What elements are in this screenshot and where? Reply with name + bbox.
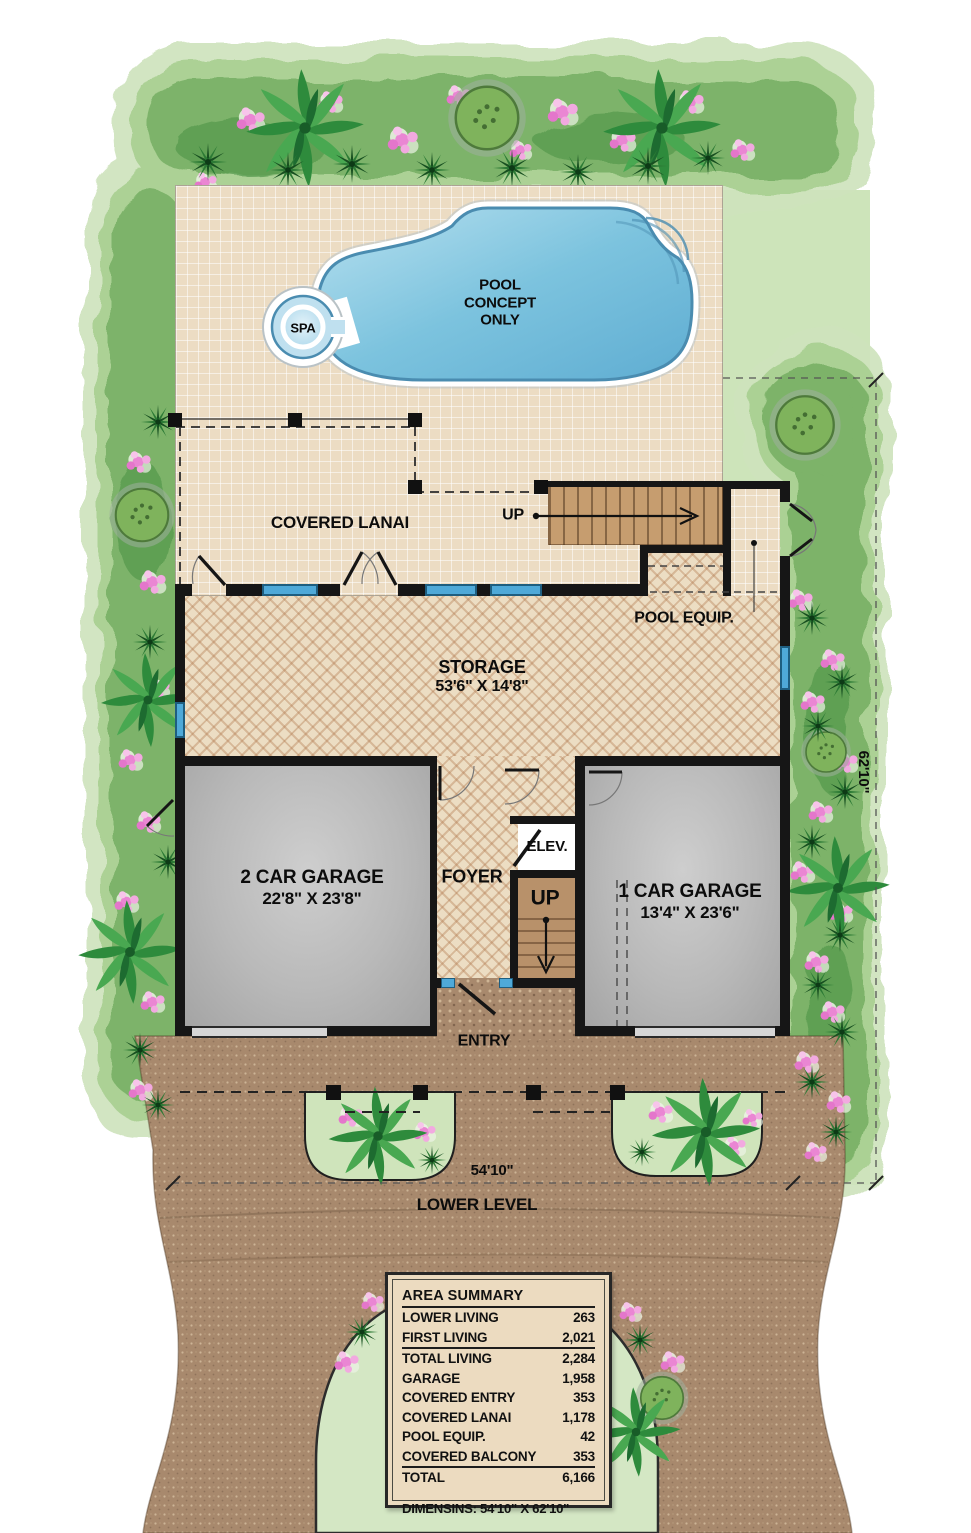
entry-posts: [326, 1085, 625, 1100]
garage-2car-dimensions: 22'8" X 23'8": [240, 889, 383, 909]
row-value: 263: [573, 1308, 595, 1328]
row-value: 2,021: [562, 1328, 595, 1348]
wall-segment: [510, 816, 575, 824]
entry-label: ENTRY: [458, 1033, 511, 1052]
wall-segment: [575, 756, 585, 1036]
elevator-label: ELEV.: [527, 838, 568, 856]
covered-lanai-label: COVERED LANAI: [271, 513, 409, 533]
row-label: TOTAL: [402, 1468, 445, 1488]
wall-segment: [780, 481, 790, 502]
row-value: 1,178: [562, 1408, 595, 1428]
table-row: FIRST LIVING2,021: [402, 1328, 595, 1348]
row-label: COVERED LANAI: [402, 1408, 511, 1428]
row-label: GARAGE: [402, 1369, 460, 1389]
area-summary-table: AREA SUMMARY LOWER LIVING263 FIRST LIVIN…: [385, 1272, 612, 1508]
row-label: FIRST LIVING: [402, 1328, 487, 1348]
floor-plan-canvas: COVERED LANAI POOL CONCEPT ONLY SPA UP P…: [0, 0, 971, 1533]
pool-equip-room: [723, 484, 780, 596]
garage-1car-name: 1 CAR GARAGE: [618, 881, 761, 903]
wall-segment: [510, 878, 518, 988]
wall-segment: [398, 584, 425, 596]
storage-label: STORAGE 53'6" X 14'8": [435, 657, 528, 697]
garage-2car-name: 2 CAR GARAGE: [240, 867, 383, 889]
row-label: COVERED ENTRY: [402, 1388, 515, 1408]
height-dimension-label: 62'10": [854, 751, 872, 794]
row-label: LOWER LIVING: [402, 1308, 499, 1328]
pool-label-line1: POOL: [464, 276, 536, 294]
area-summary-title: AREA SUMMARY: [402, 1286, 595, 1308]
table-row: COVERED ENTRY353: [402, 1388, 595, 1408]
table-row: GARAGE1,958: [402, 1369, 595, 1389]
row-value: 2,284: [562, 1349, 595, 1369]
wall-segment: [318, 584, 340, 596]
row-label: TOTAL LIVING: [402, 1349, 492, 1369]
window: [425, 584, 477, 596]
dimensions-note: DIMENSINS: 54'10" X 62'10": [402, 1501, 595, 1516]
row-value: 42: [580, 1427, 595, 1447]
table-row: COVERED LANAI1,178: [402, 1408, 595, 1428]
window: [175, 702, 185, 738]
wall-segment: [327, 1026, 437, 1036]
wall-segment: [780, 556, 790, 1036]
stairs-up-lanai: [548, 486, 723, 545]
wall-segment: [542, 584, 648, 596]
width-dimension-label: 54'10": [471, 1162, 514, 1180]
row-value: 353: [573, 1388, 595, 1408]
wall-segment: [226, 584, 262, 596]
wall-segment: [175, 584, 185, 1036]
table-row: TOTAL6,166: [402, 1466, 595, 1488]
planter-left: [305, 1092, 455, 1180]
area-summary-inner: AREA SUMMARY LOWER LIVING263 FIRST LIVIN…: [392, 1279, 605, 1501]
window: [780, 646, 790, 690]
row-label: POOL EQUIP.: [402, 1427, 486, 1447]
wall-segment: [477, 584, 490, 596]
garage-1car-dimensions: 13'4" X 23'6": [618, 903, 761, 923]
up-label-lanai: UP: [502, 507, 524, 526]
row-value: 353: [573, 1447, 595, 1467]
wall-segment: [648, 545, 723, 553]
stair-vestibule: [648, 551, 723, 596]
wall-segment: [175, 1026, 192, 1036]
wall-segment: [430, 756, 437, 1036]
wall-segment: [548, 481, 723, 487]
foyer-label: FOYER: [441, 866, 502, 887]
window: [262, 584, 318, 596]
garage-door-1car: [635, 1026, 775, 1038]
pool-label: POOL CONCEPT ONLY: [464, 276, 536, 329]
lower-level-label: LOWER LEVEL: [417, 1195, 538, 1215]
row-label: COVERED BALCONY: [402, 1447, 536, 1467]
window: [499, 978, 513, 988]
stairs-treads: [518, 918, 575, 980]
spa-label: SPA: [290, 320, 315, 335]
pool-label-line3: ONLY: [464, 312, 536, 330]
wall-segment: [723, 481, 731, 596]
row-value: 6,166: [562, 1468, 595, 1488]
window: [441, 978, 455, 988]
wall-segment: [775, 1026, 790, 1036]
wall-segment: [510, 870, 575, 878]
table-row: LOWER LIVING263: [402, 1308, 595, 1328]
entry-door-opening: [455, 978, 499, 988]
pool-equip-label: POOL EQUIP.: [634, 610, 733, 629]
table-row: TOTAL LIVING2,284: [402, 1347, 595, 1369]
garage-door-2car: [192, 1026, 327, 1038]
window: [490, 584, 542, 596]
row-value: 1,958: [562, 1369, 595, 1389]
table-row: COVERED BALCONY353: [402, 1447, 595, 1467]
wall-segment: [585, 1026, 635, 1036]
table-row: POOL EQUIP.42: [402, 1427, 595, 1447]
covered-entry-dashes: [180, 1092, 788, 1112]
storage-name: STORAGE: [435, 657, 528, 678]
wall-segment: [175, 756, 440, 766]
garage-1car-label: 1 CAR GARAGE 13'4" X 23'6": [618, 881, 761, 923]
storage-dimensions: 53'6" X 14'8": [435, 678, 528, 697]
pool-label-line2: CONCEPT: [464, 294, 536, 312]
garage-2car-label: 2 CAR GARAGE 22'8" X 23'8": [240, 867, 383, 909]
up-label-foyer: UP: [531, 887, 560, 912]
planter-right: [612, 1092, 762, 1176]
